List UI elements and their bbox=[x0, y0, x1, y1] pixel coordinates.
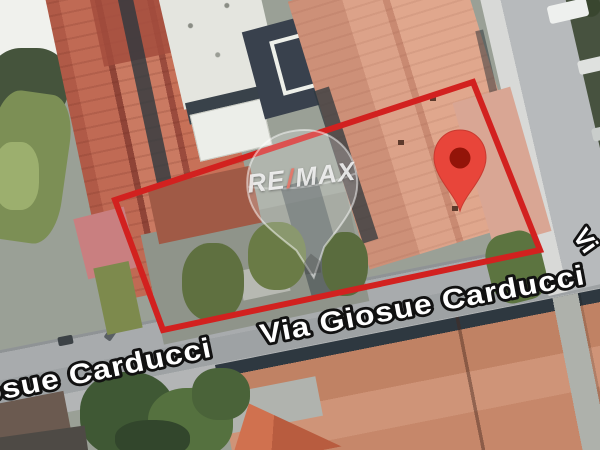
remax-text-re: RE bbox=[245, 164, 286, 198]
map-pin-icon bbox=[429, 128, 491, 214]
remax-balloon-icon bbox=[225, 114, 384, 298]
satellite-map-image[interactable]: RE/MAX Via Giosue Carducci osue Carducci… bbox=[0, 0, 600, 450]
remax-watermark: RE/MAX bbox=[225, 114, 384, 298]
remax-text-max: MAX bbox=[293, 156, 357, 193]
